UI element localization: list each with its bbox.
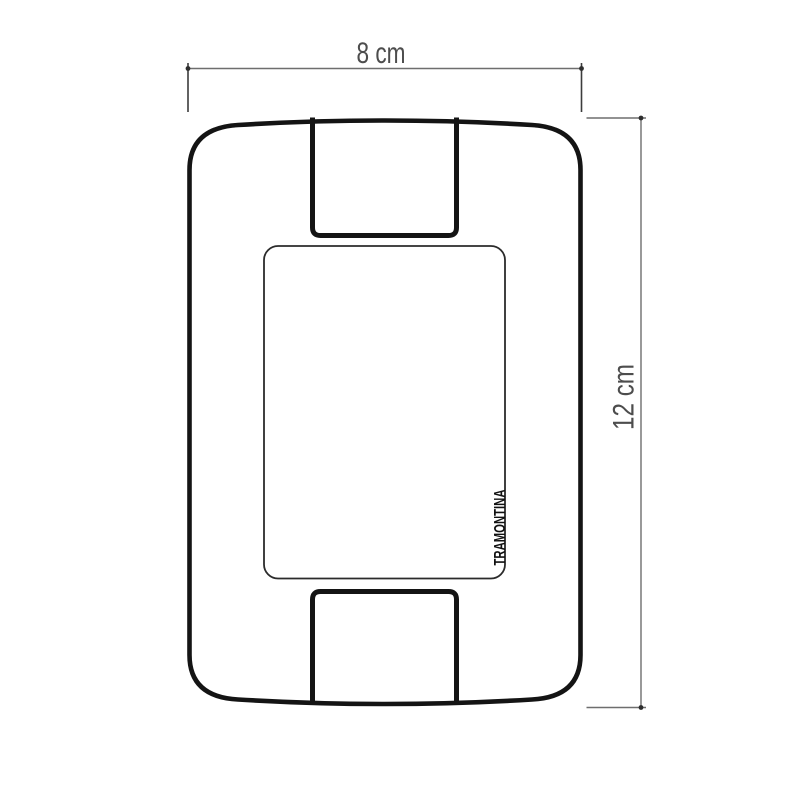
svg-text:8 cm: 8 cm	[357, 37, 406, 70]
svg-text:12 cm: 12 cm	[608, 364, 641, 430]
svg-text:TRAMONTINA: TRAMONTINA	[492, 490, 509, 566]
